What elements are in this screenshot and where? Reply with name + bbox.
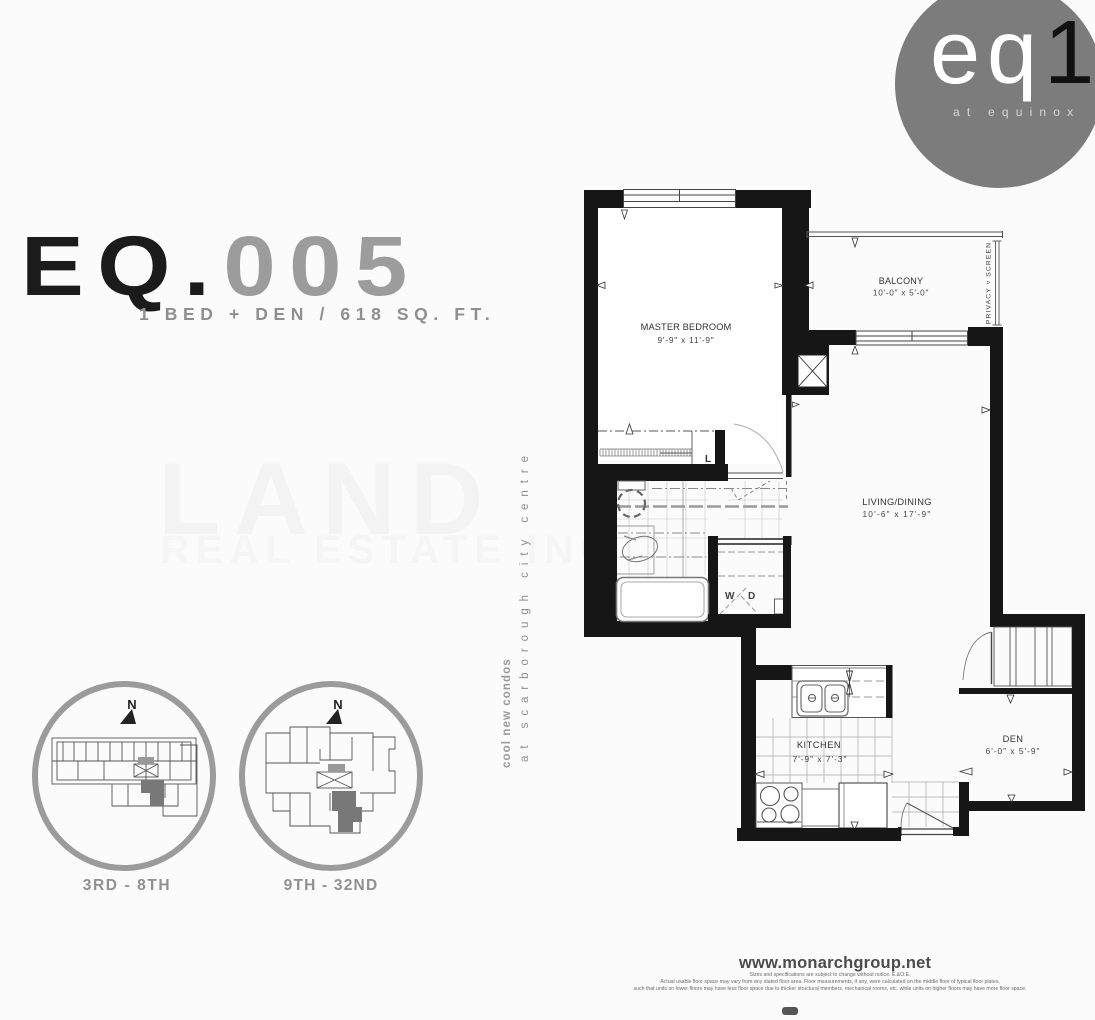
svg-text:D: D: [748, 591, 756, 602]
svg-text:6'-0" x 5'-9": 6'-0" x 5'-9": [986, 746, 1041, 756]
svg-text:L: L: [705, 454, 712, 465]
svg-text:MASTER BEDROOM: MASTER BEDROOM: [641, 322, 732, 332]
svg-text:KITCHEN: KITCHEN: [797, 740, 841, 750]
svg-text:PRIVACY ▿ SCREEN: PRIVACY ▿ SCREEN: [986, 242, 993, 324]
svg-text:10'-0" x 5'-0": 10'-0" x 5'-0": [873, 288, 929, 298]
svg-text:BALCONY: BALCONY: [879, 276, 923, 286]
svg-text:9'-9" x 11'-9": 9'-9" x 11'-9": [658, 335, 715, 345]
svg-text:7'-9" x 7'-3": 7'-9" x 7'-3": [793, 754, 848, 764]
svg-text:DEN: DEN: [1003, 734, 1024, 744]
svg-text:LIVING/DINING: LIVING/DINING: [862, 497, 932, 507]
svg-text:10'-6" x 17'-9": 10'-6" x 17'-9": [862, 509, 931, 519]
